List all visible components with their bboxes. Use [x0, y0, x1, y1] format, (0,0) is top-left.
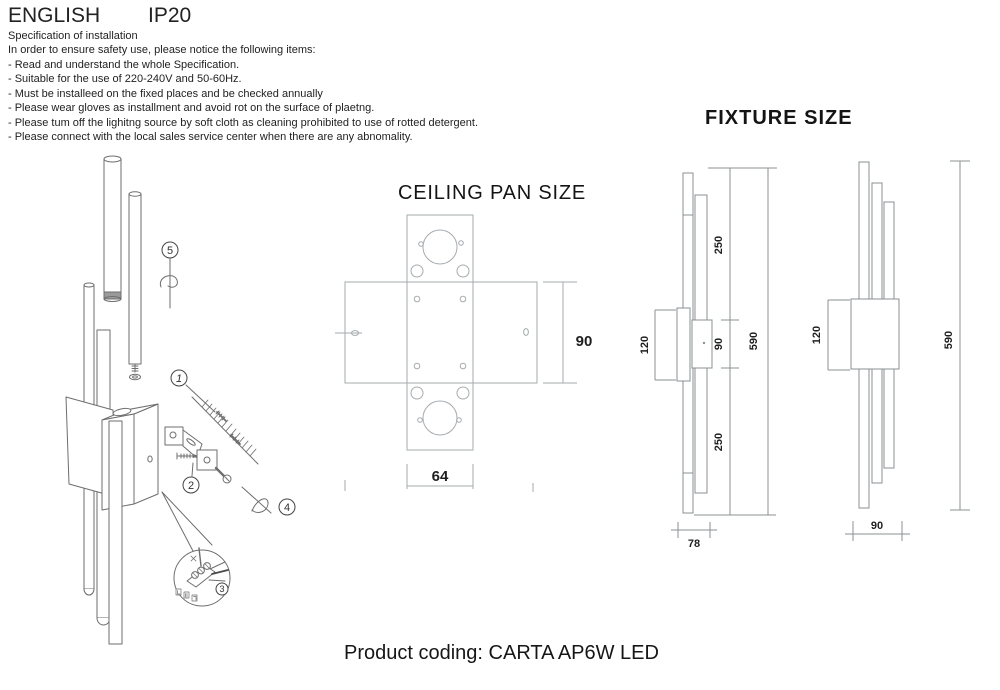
fixture-side-view — [655, 168, 777, 538]
installation-diagram — [66, 156, 295, 644]
pan-holes — [335, 230, 528, 435]
step-5-number: 5 — [167, 245, 173, 257]
front-center-box — [851, 299, 899, 369]
side-dim-mid: 90 — [713, 338, 725, 350]
front-dim-bracket: 120 — [811, 326, 823, 344]
wall-anchor-screw — [230, 434, 240, 444]
side-center-box — [692, 320, 712, 368]
side-dim-depth: 78 — [688, 538, 700, 550]
fixture-front-view — [828, 161, 970, 541]
pan-horizontal-plate — [345, 282, 537, 383]
front-dim-width: 90 — [871, 520, 883, 532]
mounting-bracket — [165, 427, 217, 470]
technical-drawings: 5 1 2 3 4 — [0, 0, 1000, 690]
power-wire — [242, 487, 271, 513]
side-dim-lines — [655, 168, 777, 538]
front-dim-total: 590 — [943, 331, 955, 349]
step-3-number: 3 — [219, 584, 224, 594]
lamp-tube-detached-large — [104, 156, 121, 302]
pan-dim-height-lines — [543, 282, 577, 383]
step-4-number: 4 — [284, 502, 290, 514]
spec-sheet-page: ENGLISH IP20 Specification of installati… — [0, 0, 1000, 690]
ceiling-pan-diagram — [335, 215, 577, 492]
screw-diagonal — [216, 468, 231, 483]
pan-dim-width-label: 64 — [432, 468, 449, 485]
lamp-tube-detached-thin — [129, 192, 141, 380]
side-dim-total: 590 — [748, 332, 760, 350]
side-back-plate — [677, 308, 690, 381]
pan-dim-height-label: 90 — [576, 333, 593, 350]
pan-vertical-plate — [407, 215, 473, 450]
step-1-number: 1 — [176, 373, 182, 385]
side-dim-bracket: 120 — [639, 336, 651, 354]
lamp-tube-lower-front — [109, 421, 122, 644]
step-2-number: 2 — [188, 480, 194, 492]
side-dim-bottom: 250 — [713, 433, 725, 451]
side-dim-top: 250 — [713, 236, 725, 254]
